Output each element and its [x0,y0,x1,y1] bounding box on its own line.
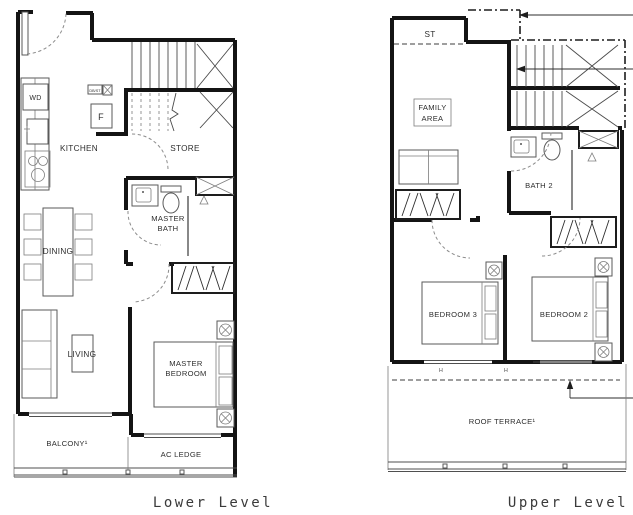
kitchen-sink [24,119,48,144]
store-door-arc [132,134,168,170]
bedside-table-top [217,321,234,339]
bedside-table-bottom [217,409,234,427]
master-wardrobe [172,263,234,293]
toilet [542,133,562,160]
bedside-table [486,262,502,279]
window-marker-h1: H [439,368,443,374]
vent-box-small [103,85,112,95]
bedroom3-furniture [422,262,502,344]
master-bath-label-1: MASTER [151,214,185,223]
roof-terrace-label: ROOF TERRACE¹ [469,417,536,426]
lower-level-plan: KITCHEN STORE WD F DB/ST MASTER BATH DIN… [14,12,237,477]
living-label: LIVING [68,350,97,359]
bedroom2-door-arc [542,218,580,256]
sofa-2seat [399,150,458,184]
stair-treads-upper-flight [132,42,233,88]
fridge-label: F [98,112,104,122]
bedroom3-wardrobe [396,190,460,219]
upper-level-plan: ST FAMILY AREA BATH 2 BEDROOM 3 BEDROOM … [388,10,633,472]
bedroom-window [144,434,221,438]
lower-staircase [132,42,233,131]
stair-break-line [170,93,178,131]
shower-head-icon [588,153,596,161]
ac-vent-box [579,131,618,148]
living-window [29,413,112,417]
st-label: ST [424,30,435,39]
master-bedroom-label-2: BEDROOM [165,369,206,378]
stair-treads-dashed-flight [132,92,233,131]
bedroom2-wardrobe [551,217,616,247]
bedroom3-label: BEDROOM 3 [429,310,477,319]
bedside-table-bottom [595,343,612,361]
db-st-label: DB/ST [89,89,101,93]
bedroom2-label: BEDROOM 2 [540,310,588,319]
lower-level-caption: Lower Level [153,495,273,511]
bedside-table-top [595,258,612,276]
toilet [161,186,181,213]
upper-level-caption: Upper Level [508,495,628,511]
master-bedroom-label-1: MASTER [169,359,203,368]
bath-basin [132,185,158,206]
bedroom3-door-arc [432,220,470,258]
family-area-label-2: AREA [422,114,445,123]
bed [532,277,608,341]
balcony-label: BALCONY¹ [46,439,87,448]
master-bedroom-door-arc [133,264,169,302]
bath2-fixtures [511,131,618,210]
shower-head-icon [200,196,208,204]
sofa [22,310,57,398]
entry-door-leaf [22,12,28,55]
dining-label: DINING [43,247,73,256]
window-marker-h2: H [504,368,508,374]
floor-plan-sheet: KITCHEN STORE WD F DB/ST MASTER BATH DIN… [0,0,633,515]
leader-arrow-icon [567,380,573,389]
entry-door-arc [27,13,66,54]
bath2-label: BATH 2 [525,181,553,190]
ac-vent-box [196,177,234,195]
ac-ledge-label: AC LEDGE [161,450,202,459]
kitchen-label: KITCHEN [60,144,98,153]
family-area-label-1: FAMILY [418,103,446,112]
bath2-basin [511,137,536,157]
master-bath-label-2: BATH [158,224,179,233]
store-label: STORE [170,144,200,153]
wd-label: WD [29,95,41,102]
floor-plan-drawing: KITCHEN STORE WD F DB/ST MASTER BATH DIN… [0,0,633,515]
